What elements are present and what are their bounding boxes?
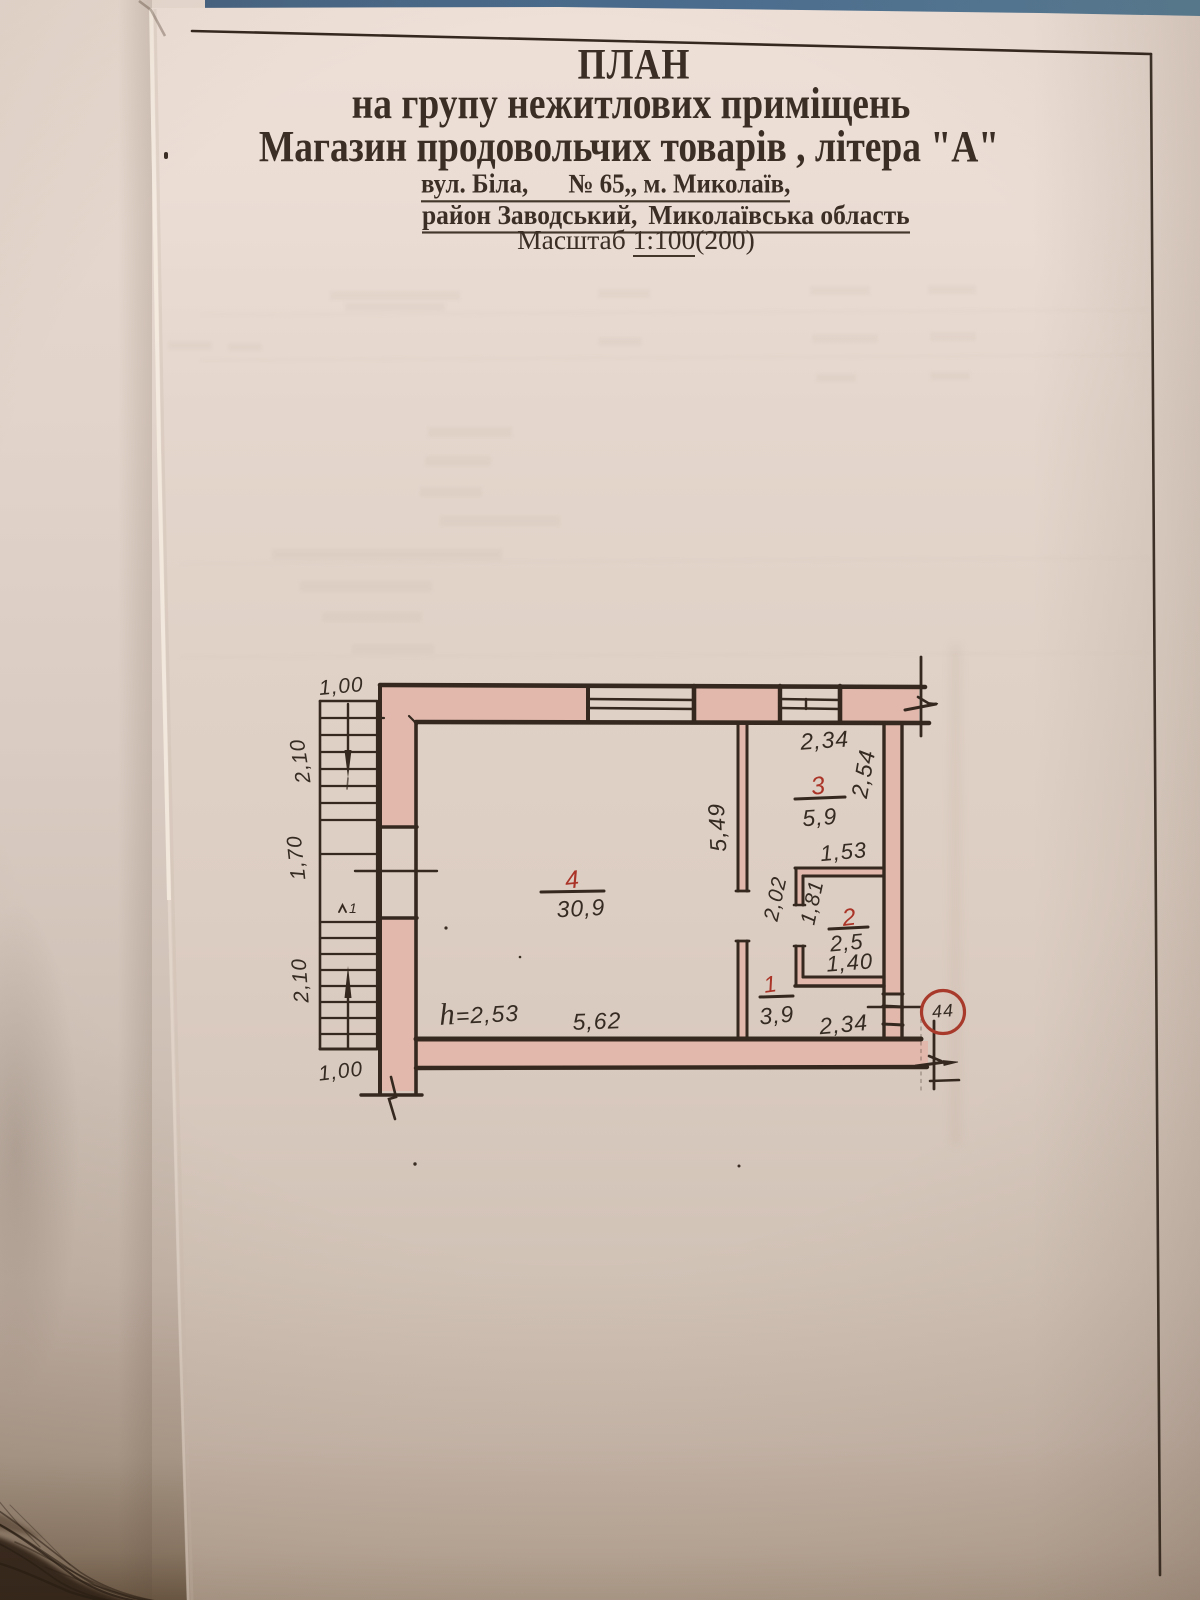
svg-text:2,10: 2,10: [286, 737, 316, 786]
svg-text:2,02: 2,02: [760, 874, 792, 924]
svg-text:1,00: 1,00: [318, 673, 365, 700]
svg-text:1,40: 1,40: [825, 948, 873, 976]
svg-text:2,34: 2,34: [817, 1009, 869, 1039]
svg-text:1: 1: [762, 970, 779, 998]
svg-text:h=2,53: h=2,53: [438, 993, 519, 1032]
svg-text:2,34: 2,34: [798, 725, 849, 754]
svg-text:3,9: 3,9: [758, 1001, 795, 1030]
svg-text:5,62: 5,62: [572, 1007, 622, 1035]
svg-text:1,00: 1,00: [317, 1057, 364, 1085]
svg-text:2,10: 2,10: [287, 957, 313, 1004]
svg-text:1,70: 1,70: [283, 834, 311, 881]
svg-text:44: 44: [931, 1000, 955, 1022]
svg-text:1,53: 1,53: [819, 837, 868, 866]
svg-text:5,49: 5,49: [703, 802, 732, 852]
svg-text:1: 1: [349, 900, 358, 916]
svg-text:5,9: 5,9: [801, 803, 838, 831]
svg-text:2,54: 2,54: [846, 747, 880, 801]
svg-text:30,9: 30,9: [556, 894, 606, 923]
